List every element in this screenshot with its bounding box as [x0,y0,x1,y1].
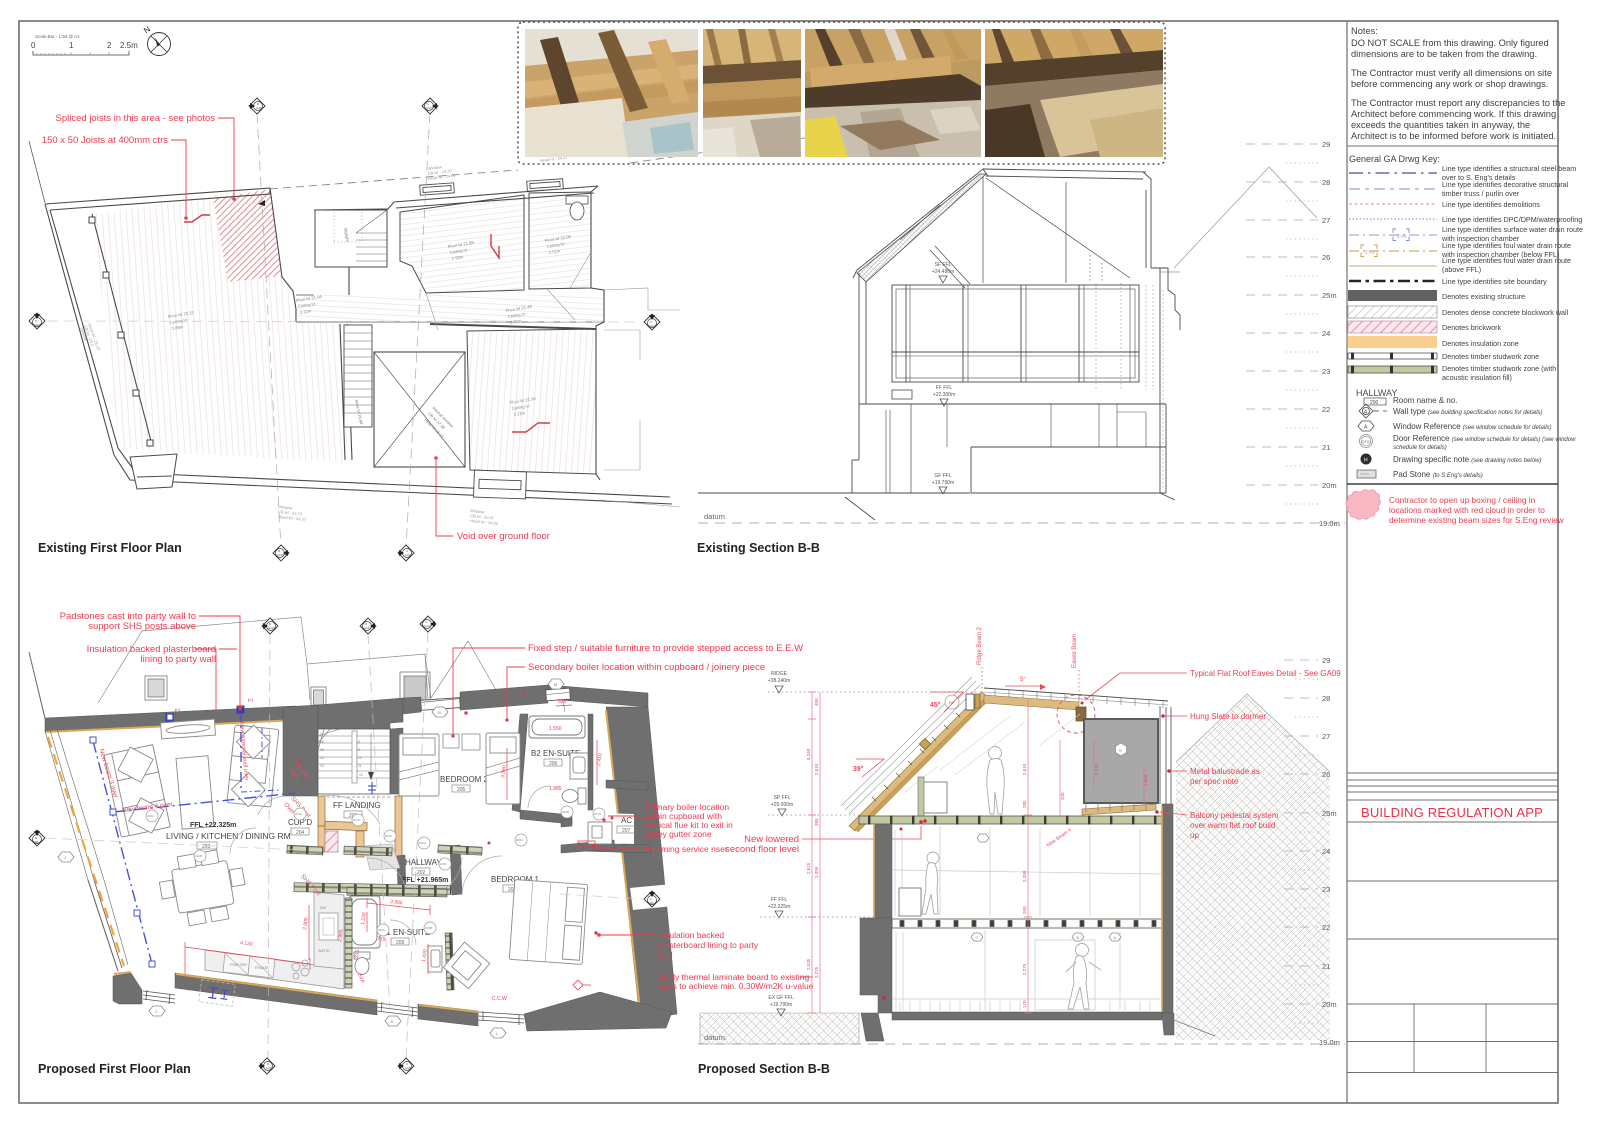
svg-text:up: up [1190,831,1199,840]
svg-text:+19.790m: +19.790m [932,480,954,486]
svg-text:26: 26 [1322,770,1330,779]
svg-text:Line type identifies foul wate: Line type identifies foul water drain ro… [1442,256,1571,265]
svg-text:24: 24 [1322,329,1330,338]
svg-text:K: K [391,1019,394,1024]
svg-text:R2: R2 [949,700,955,705]
svg-text:260: 260 [1022,906,1027,914]
svg-text:Line type identifies foul wate: Line type identifies foul water drain ro… [1442,241,1571,250]
svg-text:walls to achieve min. 0.30W/m2: walls to achieve min. 0.30W/m2K u-value [657,981,814,991]
svg-text:16: 16 [320,740,324,744]
svg-text:14: 14 [320,756,324,760]
svg-text:Contractor to open up boxing /: Contractor to open up boxing / ceiling i… [1389,495,1536,505]
svg-text:+19.790m: +19.790m [770,1002,792,1008]
svg-text:Eaves Beam: Eaves Beam [1072,634,1078,668]
svg-text:GA03: GA03 [405,553,412,557]
svg-text:Line type identifies DPC/DPM/w: Line type identifies DPC/DPM/waterproofi… [1442,215,1582,224]
svg-text:Ridge Beam 2: Ridge Beam 2 [977,626,983,665]
svg-text:Proposed Section B-B: Proposed Section B-B [698,1062,830,1076]
svg-text:Line type identifies demolitio: Line type identifies demolitions [1442,200,1540,209]
svg-text:support SHS posts above: support SHS posts above [88,621,196,632]
svg-text:8: 8 [358,740,360,744]
svg-text:J: J [155,1009,157,1014]
svg-text:EX GF FFL: EX GF FFL [768,995,794,1001]
svg-text:202A: 202A [385,834,392,838]
svg-text:The Contractor must verify all: The Contractor must verify all dimension… [1351,68,1552,78]
svg-text:BEDROOM 2: BEDROOM 2 [440,775,489,784]
svg-text:FFL +21.965m: FFL +21.965m [402,877,448,884]
svg-text:wall: wall [657,950,673,960]
svg-text:G: G [1119,748,1122,753]
svg-text:Proposed First Floor Plan: Proposed First Floor Plan [38,1062,191,1076]
svg-text:203: 203 [202,844,211,850]
svg-text:+38.240m: +38.240m [768,678,790,684]
svg-text:GA03: GA03 [266,1066,273,1070]
svg-text:20m: 20m [1322,1000,1337,1009]
svg-text:Denotes timber studwork zone (: Denotes timber studwork zone (with [1442,364,1556,373]
svg-text:FF FFL: FF FFL [771,897,788,903]
svg-text:19.0m: 19.0m [1319,1038,1340,1047]
svg-text:Denotes timber studwork zone: Denotes timber studwork zone [1442,352,1539,361]
svg-text:925: 925 [558,699,567,705]
svg-text:13: 13 [320,764,324,768]
svg-text:FF FFL: FF FFL [936,385,953,391]
svg-text:per spec note: per spec note [1190,777,1239,786]
svg-text:204: 204 [296,830,305,836]
svg-text:27: 27 [1322,216,1330,225]
svg-text:Denotes dense concrete blockwo: Denotes dense concrete blockwork wall [1442,308,1569,317]
svg-text:25m: 25m [1322,291,1337,300]
svg-text:valley gutter zone: valley gutter zone [645,829,712,839]
svg-text:28: 28 [1322,178,1330,187]
svg-text:206B: 206B [562,810,569,814]
svg-text:+22.325m: +22.325m [768,904,790,910]
svg-text:21: 21 [1322,443,1330,452]
svg-text:DO NOT SCALE from this drawing: DO NOT SCALE from this drawing. Only fig… [1351,38,1549,48]
svg-text:acoustic insulation fill): acoustic insulation fill) [1442,373,1512,382]
svg-text:209: 209 [396,940,405,946]
svg-text:170: 170 [1022,1000,1027,1008]
svg-text:HALLWAY: HALLWAY [1356,388,1397,398]
svg-text:SP FFL: SP FFL [774,795,791,801]
svg-text:Existing Section B-B: Existing Section B-B [697,541,820,555]
svg-text:12: 12 [359,773,363,777]
svg-text:LIVING / KITCHEN / DINING RM: LIVING / KITCHEN / DINING RM [166,831,291,841]
svg-text:202B: 202B [195,854,202,858]
svg-text:GF FFL: GF FFL [934,473,951,479]
svg-text:29: 29 [1322,140,1330,149]
svg-text:21: 21 [1322,962,1330,971]
svg-text:2.610: 2.610 [1022,763,1027,775]
svg-text:FREEZER: FREEZER [230,963,247,967]
svg-text:Spliced joists in this area -: Spliced joists in this area - see photos [56,113,216,124]
svg-text:exceeds the quantities taken i: exceeds the quantities taken in anyway, … [1351,120,1530,130]
svg-text:Notes:: Notes: [1351,26,1378,36]
svg-text:2.535: 2.535 [806,958,811,970]
svg-text:5°: 5° [1020,677,1026,683]
svg-text:+25.000m: +25.000m [771,802,793,808]
svg-text:Line type identifies a structu: Line type identifies a structural steel … [1442,164,1576,173]
svg-text:1: 1 [69,41,74,50]
svg-text:RIDGE: RIDGE [771,671,788,677]
svg-text:207A: 207A [594,812,601,816]
svg-text:Hung Slate to dormer: Hung Slate to dormer [1190,712,1266,721]
svg-text:GA03: GA03 [268,626,275,630]
svg-text:2.395: 2.395 [814,866,819,878]
svg-text:GF01: GF01 [1362,439,1373,444]
svg-text:715: 715 [377,936,386,943]
svg-text:207: 207 [622,828,631,834]
svg-text:Architect before commencing wo: Architect before commencing work. If thi… [1351,109,1556,119]
svg-text:201A: 201A [353,818,360,822]
svg-text:E: E [35,836,37,840]
svg-text:22: 22 [1322,923,1330,932]
svg-text:Architect is to be informed be: Architect is to be informed before work … [1351,131,1556,141]
svg-text:0: 0 [31,41,36,50]
svg-text:206A: 206A [516,838,523,842]
svg-text:AC: AC [621,816,632,825]
svg-text:Line type identifies surface w: Line type identifies surface water drain… [1442,225,1583,234]
svg-text:2: 2 [107,41,112,50]
svg-text:C: C [976,936,979,940]
svg-text:GA03: GA03 [405,1066,412,1070]
svg-text:SAB: SAB [648,901,653,905]
svg-text:Void over ground floor: Void over ground floor [457,531,550,542]
svg-text:FFL +22.325m: FFL +22.325m [190,822,236,829]
svg-text:Room name & no.: Room name & no. [1393,396,1457,405]
svg-text:Insulation backed: Insulation backed [658,930,724,940]
svg-text:39°: 39° [853,765,864,773]
svg-text:Existing First Floor Plan: Existing First Floor Plan [38,541,182,555]
svg-text:GA03: GA03 [364,626,371,630]
svg-text:B: B [269,622,271,626]
svg-text:330: 330 [1060,792,1065,800]
svg-text:IC-01: IC-01 [1397,234,1408,239]
svg-text:P1: P1 [248,697,254,703]
svg-text:over warm flat roof build: over warm flat roof build [1190,821,1275,830]
svg-text:Metal balustrade as: Metal balustrade as [1190,767,1260,776]
svg-text:28: 28 [1322,694,1330,703]
svg-text:206A: 206A [147,814,154,818]
svg-text:SF FFL: SF FFL [935,262,952,268]
svg-text:before commencing any work or: before commencing any work or shop drawi… [1351,79,1548,89]
svg-text:Denotes brickwork: Denotes brickwork [1442,323,1502,332]
svg-text:M: M [554,682,557,687]
svg-text:2.210: 2.210 [1094,763,1099,775]
svg-text:datum.: datum. [704,512,727,521]
svg-text:205: 205 [457,787,466,793]
svg-text:400: 400 [814,698,819,706]
svg-text:timber truss / purlin over: timber truss / purlin over [1442,189,1520,198]
svg-text:Fixed step / suitable furnitur: Fixed step / suitable furniture to provi… [528,643,803,654]
svg-text:5.240: 5.240 [806,748,811,760]
svg-text:2.610: 2.610 [814,763,819,775]
svg-text:204A: 204A [295,812,302,816]
svg-text:17: 17 [320,732,324,736]
svg-text:H: H [1364,458,1368,464]
svg-text:dimensions are to be taken fro: dimensions are to be taken from the draw… [1351,49,1537,59]
svg-text:10: 10 [358,756,362,760]
svg-text:+24.490m: +24.490m [932,269,954,275]
svg-text:HALLWAY: HALLWAY [405,858,442,867]
svg-text:1.985: 1.985 [549,786,562,792]
svg-text:GA03: GA03 [648,324,655,328]
svg-text:GA03: GA03 [33,323,40,327]
svg-text:202: 202 [417,870,426,876]
svg-text:C.C.W: C.C.W [492,996,507,1002]
svg-text:200: 200 [1370,400,1379,406]
svg-text:2.615: 2.615 [806,862,811,874]
svg-text:BUILDING REGULATION APP: BUILDING REGULATION APP [1361,805,1543,820]
svg-text:24: 24 [1322,847,1330,856]
svg-text:209A: 209A [378,928,385,932]
svg-text:DW: DW [320,906,327,910]
svg-text:150 x 50 Joists at 400mm ctrs: 150 x 50 Joists at 400mm ctrs [42,135,168,146]
svg-text:The Contractor must report any: The Contractor must report any discrepan… [1351,98,1565,108]
svg-text:lining to party wall: lining to party wall [140,654,216,665]
svg-text:209B: 209B [425,926,432,930]
svg-text:22: 22 [1322,405,1330,414]
svg-text:General GA Drwg Key:: General GA Drwg Key: [1349,154,1440,164]
svg-text:Denotes existing structure: Denotes existing structure [1442,292,1525,301]
svg-text:29: 29 [1322,656,1330,665]
svg-text:second floor level: second floor level [725,844,799,855]
svg-text:determine existing beam sizes: determine existing beam sizes for S.Eng … [1389,515,1565,525]
svg-text:15: 15 [320,748,324,752]
svg-text:Secondary boiler location with: Secondary boiler location within cupboar… [528,662,765,673]
svg-text:FF LANDING: FF LANDING [333,801,381,810]
svg-text:Incoming service riser: Incoming service riser [645,844,728,854]
svg-text:schedule for details): schedule for details) [1393,445,1447,451]
svg-text:Scale Bar - 1:50 @ A1: Scale Bar - 1:50 @ A1 [35,34,80,39]
svg-text:25m: 25m [1322,809,1337,818]
svg-text:FRIDGE: FRIDGE [255,966,269,970]
svg-text:Balcony pedestal system: Balcony pedestal system [1190,811,1279,820]
svg-text:26: 26 [1322,253,1330,262]
svg-text:plasterboard lining to party: plasterboard lining to party [658,940,759,950]
svg-text:45°: 45° [930,701,941,709]
svg-text:(above FFL): (above FFL) [1442,265,1481,274]
svg-text:Line type identifies site boun: Line type identifies site boundary [1442,277,1547,286]
svg-text:20m: 20m [1322,481,1337,490]
svg-text:2.5m: 2.5m [120,41,138,50]
svg-text:IC-02: IC-02 [1365,250,1376,255]
svg-text:2.275: 2.275 [814,966,819,978]
svg-text:Line type identifies decorativ: Line type identifies decorative structur… [1442,180,1569,189]
svg-text:208A: 208A [440,862,447,866]
svg-text:11: 11 [358,764,362,768]
svg-text:B: B [267,1062,269,1066]
svg-text:W&T/D: W&T/D [318,949,330,953]
svg-text:Typical Flat Roof Eaves Detail: Typical Flat Roof Eaves Detail - See GA0… [1190,669,1341,678]
svg-text:23: 23 [1322,367,1330,376]
svg-text:J: J [64,855,66,860]
svg-text:B: B [278,549,280,553]
svg-text:SAB: SAB [33,840,38,844]
svg-text:2.390: 2.390 [1022,870,1027,882]
svg-text:285: 285 [1022,800,1027,808]
svg-text:GA03: GA03 [426,106,433,110]
svg-text:Denotes insulation zone: Denotes insulation zone [1442,339,1519,348]
svg-text:27: 27 [1322,732,1330,741]
svg-text:datum.: datum. [704,1033,727,1042]
svg-text:1.550: 1.550 [549,726,562,732]
svg-text:locations marked with red clou: locations marked with red cloud in order… [1389,505,1545,515]
svg-text:23: 23 [1322,885,1330,894]
svg-text:P1: P1 [175,707,181,713]
svg-text:19.0m: 19.0m [1319,519,1340,528]
svg-text:205A: 205A [419,841,426,845]
svg-text:9: 9 [358,748,360,752]
svg-text:2.275: 2.275 [1022,963,1027,975]
svg-text:385: 385 [814,818,819,826]
svg-text:+22.300m: +22.300m [933,392,955,398]
svg-text:GA03: GA03 [424,624,431,628]
svg-text:B: B [257,102,259,106]
svg-text:N: N [438,710,441,715]
svg-text:GA03: GA03 [256,106,263,110]
svg-text:206: 206 [549,761,558,767]
svg-text:815: 815 [354,949,361,958]
svg-text:GA03: GA03 [277,553,284,557]
